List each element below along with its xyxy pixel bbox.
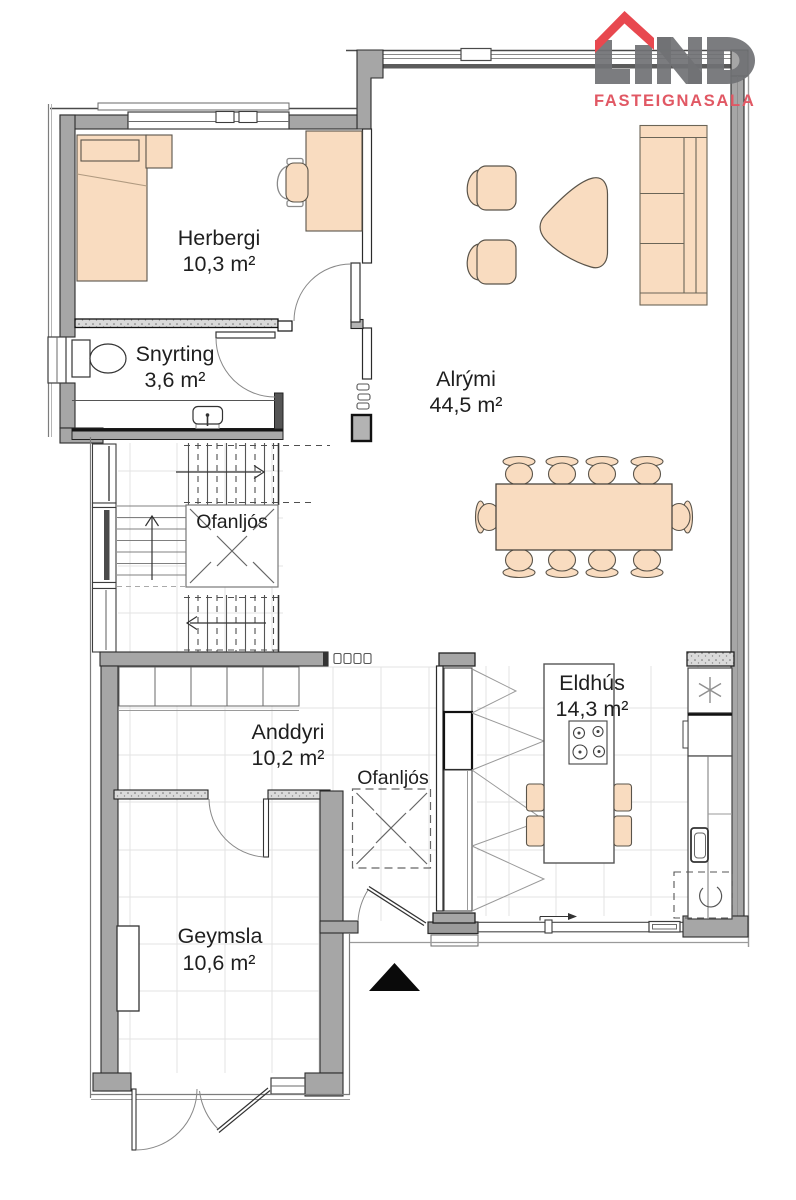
svg-text:FASTEIGNASALA: FASTEIGNASALA: [594, 92, 755, 110]
svg-text:10,6 m²: 10,6 m²: [183, 951, 256, 975]
svg-text:Snyrting: Snyrting: [136, 342, 215, 366]
svg-text:Anddyri: Anddyri: [252, 720, 325, 744]
svg-text:10,2 m²: 10,2 m²: [252, 746, 325, 770]
svg-text:Ofanljós: Ofanljós: [357, 767, 429, 789]
svg-text:44,5 m²: 44,5 m²: [430, 393, 503, 417]
svg-text:Eldhús: Eldhús: [559, 671, 625, 695]
svg-text:14,3 m²: 14,3 m²: [556, 697, 629, 721]
svg-text:3,6 m²: 3,6 m²: [145, 368, 206, 392]
svg-text:10,3 m²: 10,3 m²: [183, 252, 256, 276]
svg-text:Herbergi: Herbergi: [178, 226, 260, 250]
svg-text:Geymsla: Geymsla: [178, 924, 263, 948]
svg-text:Ofanljós: Ofanljós: [196, 511, 268, 533]
svg-text:Alrými: Alrými: [436, 367, 496, 391]
